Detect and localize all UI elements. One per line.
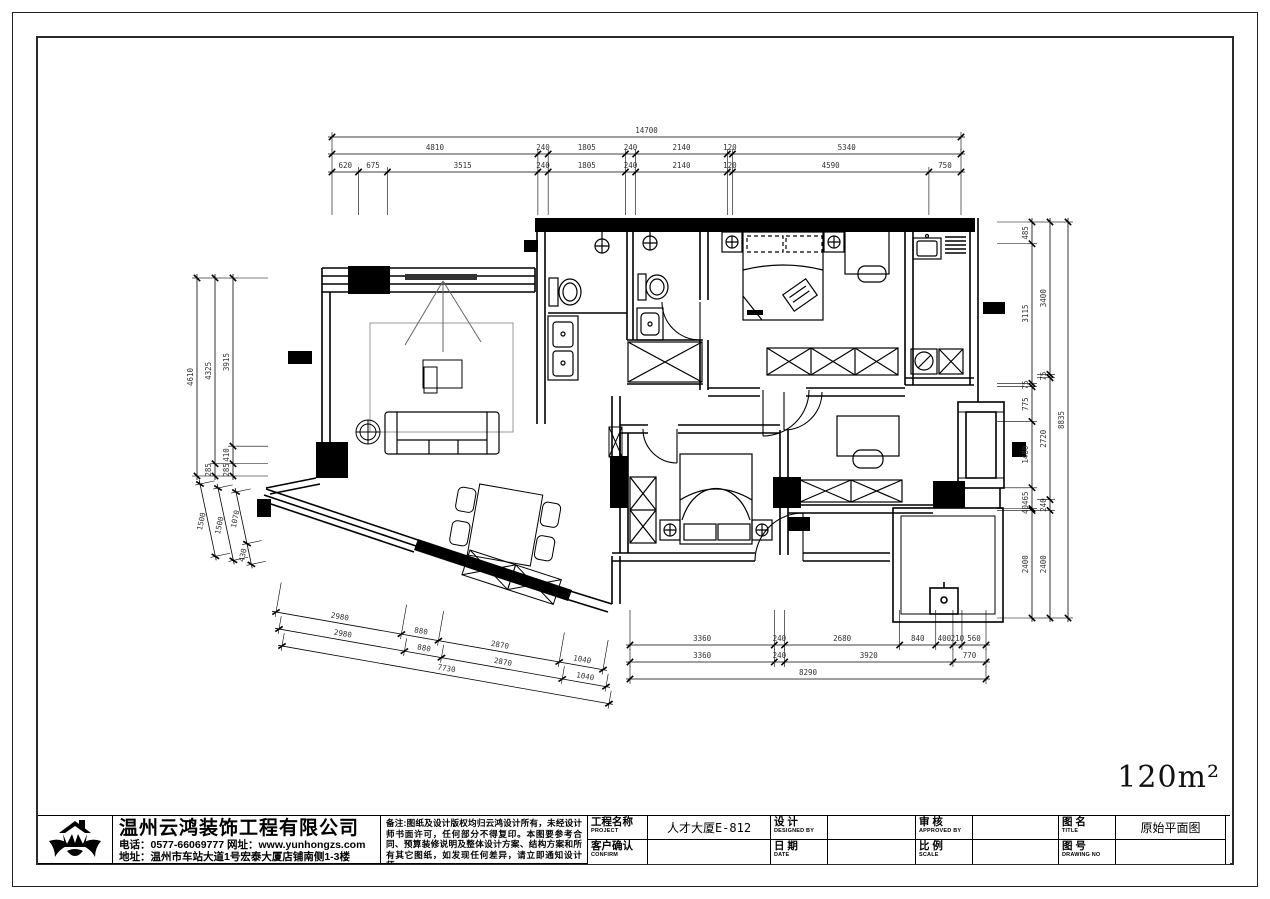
dim-value: 4610	[186, 367, 195, 386]
dim-value: 3360	[693, 651, 712, 660]
dim-value: 75	[1039, 372, 1048, 381]
stove-icon	[911, 349, 937, 374]
wardrobe-icon	[800, 480, 902, 502]
dim-value: 40	[1021, 505, 1030, 515]
sink-icon	[637, 308, 663, 340]
door-bedroom2	[643, 429, 677, 463]
dim-group-right-col3: 8835	[1055, 218, 1073, 622]
kitchen-cabinet-icon	[939, 349, 963, 374]
dim-value: 8290	[799, 668, 818, 677]
dim-value: 120	[723, 143, 737, 152]
field-drawingno-value	[1116, 840, 1226, 864]
side-table-icon	[356, 420, 380, 444]
dim-value: 5340	[838, 143, 857, 152]
dim-value: 1500	[195, 511, 208, 531]
dim-value: 210	[951, 634, 965, 643]
coffee-table-icon	[423, 360, 462, 393]
dim-value: 285	[204, 463, 213, 477]
field-confirm-label: 客户确认 CONFIRM	[588, 840, 648, 864]
dim-value: 1040	[576, 670, 596, 682]
drawing-sheet: 1470048102401805240214012053406206753515…	[0, 0, 1270, 899]
bay-window	[958, 402, 1004, 488]
dim-group-bottom-left3: 7730	[278, 633, 613, 708]
dim-value: 75	[1021, 381, 1030, 390]
field-scale-label: 比 例 SCALE	[916, 840, 973, 864]
dimension-lines: 1470048102401805240214012053406206753515…	[186, 126, 1073, 709]
dim-group-bottom-mid3: 8290	[626, 666, 990, 684]
dim-value: 465	[1021, 491, 1030, 505]
dim-value: 240	[536, 143, 550, 152]
dim-value: 2400	[1021, 555, 1030, 574]
balcony	[893, 508, 1003, 622]
window-slanted	[262, 489, 418, 552]
dim-value: 880	[414, 625, 429, 636]
tv-wall-unit	[405, 274, 477, 280]
notes-text: 备注:图纸及设计版权均归云鸿设计所有，未经设计师书面许可，任何部分不得复印。本图…	[386, 818, 582, 864]
dim-value: 1805	[578, 161, 596, 170]
dim-value: 4590	[822, 161, 841, 170]
dim-value: 410	[222, 448, 231, 462]
dim-value: 2140	[672, 143, 691, 152]
door-master-bedroom	[763, 390, 809, 436]
dim-value: 240	[1039, 498, 1048, 512]
dresser-icon	[845, 230, 889, 282]
toilet-icon	[549, 278, 581, 306]
dim-value: 400	[938, 634, 952, 643]
dim-group-bottom-mid1: 33602402680840400210560	[626, 610, 990, 650]
master-bedroom	[722, 230, 898, 375]
bed-icon	[680, 454, 752, 544]
bedroom-2	[630, 454, 772, 544]
dim-value: 4810	[426, 143, 445, 152]
field-date-value	[828, 840, 916, 864]
dim-group-top-total: 14700	[328, 126, 965, 150]
dim-value: 2140	[672, 161, 691, 170]
kitchen-sink-icon	[913, 235, 941, 260]
bed-icon	[743, 232, 823, 320]
vent-icon	[945, 237, 966, 253]
dim-value: 485	[1021, 226, 1030, 240]
field-scale-value	[973, 840, 1059, 864]
dim-value: 1805	[578, 143, 596, 152]
dim-value: 120	[723, 161, 737, 170]
dim-value: 8835	[1057, 411, 1066, 429]
field-title-label: 图 名 TITLE	[1059, 816, 1116, 840]
sofa-icon	[385, 412, 499, 454]
dim-value: 2400	[1039, 555, 1048, 574]
dim-value: 4325	[204, 362, 213, 380]
dim-value: 240	[624, 143, 638, 152]
double-sink-vanity-icon	[548, 316, 578, 380]
washing-machine-icon	[930, 582, 958, 614]
dim-value: 7730	[437, 662, 457, 674]
field-designer-value	[828, 816, 916, 840]
dim-value: 560	[967, 634, 981, 643]
dim-value: 2870	[490, 639, 510, 651]
low-cabinet-icon	[462, 550, 561, 604]
study	[800, 416, 902, 502]
company-info: 温州云鸿装饰工程有限公司 电话：0577-66069777 网址：www.yun…	[113, 816, 381, 864]
dim-value: 1040	[573, 653, 593, 665]
field-confirm-value	[648, 840, 771, 864]
field-title-value: 原始平面图	[1116, 816, 1226, 840]
dim-value: 2680	[833, 634, 852, 643]
dim-value: 840	[911, 634, 925, 643]
wardrobe-icon	[630, 477, 656, 543]
dim-value: 3915	[222, 353, 231, 371]
dim-value: 3115	[1021, 305, 1030, 323]
dim-value: 3920	[860, 651, 879, 660]
dim-value: 1070	[229, 509, 242, 529]
company-name: 温州云鸿装饰工程有限公司	[119, 818, 376, 839]
field-project-value: 人才大厦E-812	[648, 816, 771, 840]
dim-value: 2980	[333, 628, 353, 640]
floor-plan: 1470048102401805240214012053406206753515…	[0, 0, 1270, 899]
dim-value: 240	[536, 161, 550, 170]
area-label: 120m²	[1117, 760, 1220, 795]
company-phone: 电话：0577-66069777 网址：www.yunhongzs.com	[119, 839, 376, 851]
dim-value: 3515	[454, 161, 472, 170]
dim-group-right-col2: 34007527202402400	[1037, 218, 1055, 622]
hall-closet-icon	[628, 342, 702, 382]
desk-icon	[837, 416, 899, 468]
dim-value: 430	[237, 547, 249, 563]
company-address: 地址：温州市车站大道1号宏泰大厦店铺南侧1-3楼	[119, 851, 376, 863]
bathroom-2	[637, 274, 668, 340]
dim-value: 675	[366, 161, 380, 170]
field-date-label: 日 期 DATE	[771, 840, 828, 864]
door-bathroom2	[662, 302, 700, 340]
dim-value: 285	[222, 463, 231, 477]
dim-value: 240	[773, 634, 787, 643]
dim-value: 750	[938, 161, 952, 170]
dim-value: 3400	[1039, 289, 1048, 308]
dim-value: 1480	[1021, 445, 1030, 464]
dim-value: 3360	[693, 634, 712, 643]
dim-value: 14700	[635, 126, 658, 135]
shower-head-icon	[595, 232, 657, 253]
bed-tray-icon	[783, 279, 817, 311]
field-approver-value	[973, 816, 1059, 840]
dim-value: 2720	[1039, 429, 1048, 448]
door-study	[784, 392, 822, 430]
dim-group-left-col3: 3915410285	[222, 274, 268, 480]
dim-group-top-row3: 6206753515240180524021401204590750	[328, 161, 965, 215]
company-logo	[38, 816, 113, 864]
dim-value: 240	[624, 161, 638, 170]
dim-value: 2870	[493, 656, 513, 668]
kitchen	[911, 235, 966, 375]
notes-cell: 备注:图纸及设计版权均归云鸿设计所有，未经设计师书面许可，任何部分不得复印。本图…	[381, 816, 588, 864]
field-drawingno-label: 图 号 DRAWING NO	[1059, 840, 1116, 864]
wardrobe-icon	[767, 348, 898, 375]
rug	[370, 323, 513, 432]
bathroom-1	[548, 232, 657, 380]
dim-group-bottom-mid2: 33602403920770	[626, 649, 990, 667]
dim-value: 775	[1021, 397, 1030, 411]
field-designer-label: 设 计 DESIGNED BY	[771, 816, 828, 840]
dim-value: 1500	[213, 515, 226, 535]
dim-value: 240	[773, 651, 787, 660]
dim-group-top-row2: 4810240180524021401205340	[328, 143, 965, 167]
dim-value: 880	[417, 642, 432, 653]
title-block: 温州云鸿装饰工程有限公司 电话：0577-66069777 网址：www.yun…	[38, 815, 1230, 864]
dim-value: 620	[338, 161, 352, 170]
field-approver-label: 审 核 APPROVED BY	[916, 816, 973, 840]
toilet-icon	[638, 274, 668, 300]
field-project-label: 工程名称 PROJECT	[588, 816, 648, 840]
dim-value: 770	[963, 651, 977, 660]
dim-value: 2980	[330, 611, 350, 623]
